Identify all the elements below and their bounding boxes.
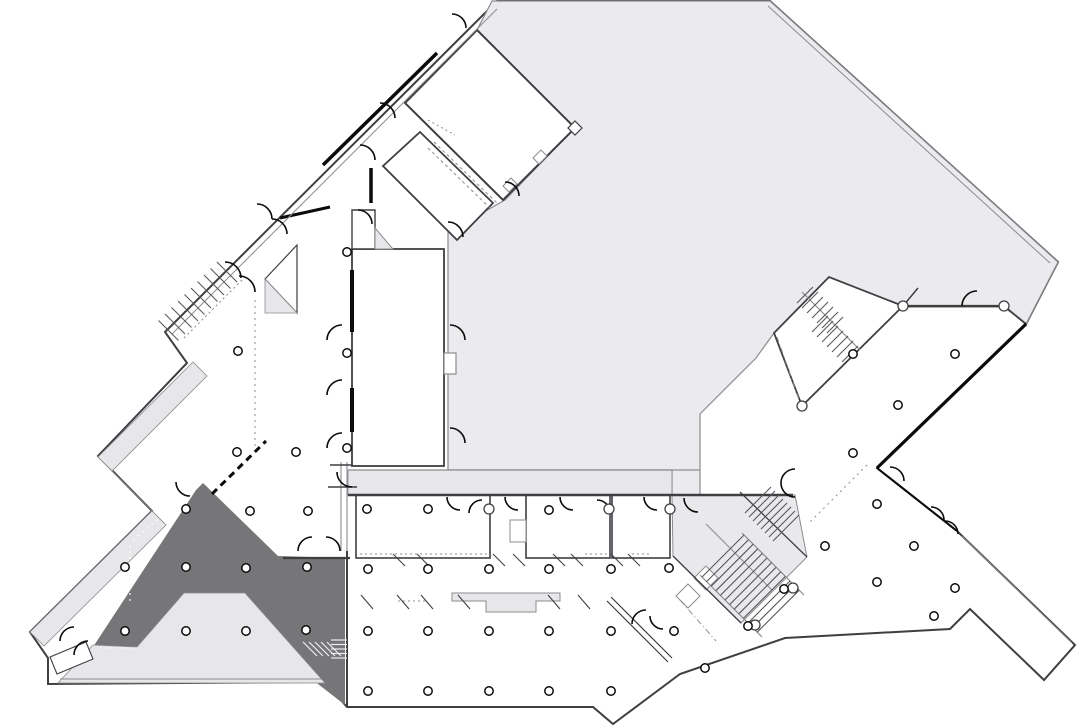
wall-node: [797, 401, 807, 411]
wall-node: [788, 583, 798, 593]
column: [744, 622, 752, 630]
column: [545, 687, 553, 695]
column: [121, 563, 129, 571]
door-arc: [452, 14, 466, 28]
column: [182, 505, 190, 513]
column: [607, 627, 615, 635]
column: [302, 626, 310, 634]
corridor-notch: [510, 520, 526, 542]
column: [424, 687, 432, 695]
column: [363, 505, 371, 513]
column: [343, 248, 351, 256]
column: [303, 563, 311, 571]
column: [821, 542, 829, 550]
central-wall-bump: [444, 353, 456, 374]
column: [242, 627, 250, 635]
column: [545, 506, 553, 514]
column: [182, 627, 190, 635]
room-mid-2: [526, 495, 610, 558]
column: [849, 449, 857, 457]
column: [233, 448, 241, 456]
column: [780, 585, 788, 593]
column: [121, 627, 129, 635]
column: [234, 347, 242, 355]
column: [545, 565, 553, 573]
column: [849, 350, 857, 358]
column: [951, 350, 959, 358]
column: [930, 612, 938, 620]
column: [364, 627, 372, 635]
column: [701, 664, 709, 672]
column: [951, 584, 959, 592]
column: [545, 627, 553, 635]
column: [424, 565, 432, 573]
column: [873, 500, 881, 508]
room-central-rect: [352, 249, 444, 466]
door-arc: [257, 204, 272, 219]
column: [182, 563, 190, 571]
column: [364, 565, 372, 573]
column: [607, 687, 615, 695]
column: [304, 507, 312, 515]
column: [343, 349, 351, 357]
column: [894, 401, 902, 409]
floor-plan-canvas: [0, 0, 1080, 727]
column: [246, 507, 254, 515]
corridor-strip: [348, 470, 672, 495]
column: [910, 542, 918, 550]
column: [485, 565, 493, 573]
column: [485, 627, 493, 635]
column: [343, 444, 351, 452]
wall-node: [665, 504, 675, 514]
room-mid-3: [612, 495, 670, 558]
column: [607, 565, 615, 573]
column: [292, 448, 300, 456]
column: [424, 627, 432, 635]
wall-node: [898, 301, 908, 311]
column: [242, 564, 250, 572]
column: [364, 687, 372, 695]
wall-node: [999, 301, 1009, 311]
floor-plan: [0, 0, 1080, 727]
central-annex: [352, 210, 375, 249]
column: [424, 505, 432, 513]
column: [873, 578, 881, 586]
wall-node: [604, 504, 614, 514]
column: [670, 627, 678, 635]
room-mid-1: [356, 495, 490, 558]
wall-node: [484, 504, 494, 514]
column: [485, 687, 493, 695]
column: [665, 564, 673, 572]
